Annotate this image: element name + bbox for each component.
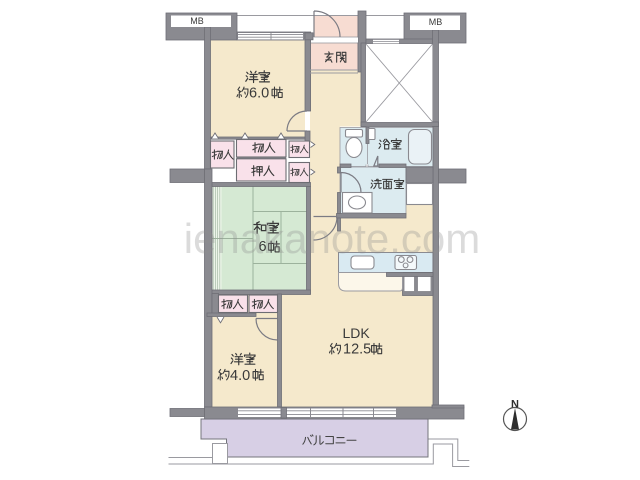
svg-text:4.0: 4.0 [230,368,250,384]
svg-text:MB: MB [429,17,443,27]
svg-text:ienakanote.com: ienakanote.com [184,215,481,262]
svg-text:12.5: 12.5 [343,342,371,358]
svg-text:N: N [511,399,519,411]
svg-text:6.0: 6.0 [249,86,269,102]
svg-text:MB: MB [190,16,204,26]
svg-text:LDK: LDK [343,325,371,341]
